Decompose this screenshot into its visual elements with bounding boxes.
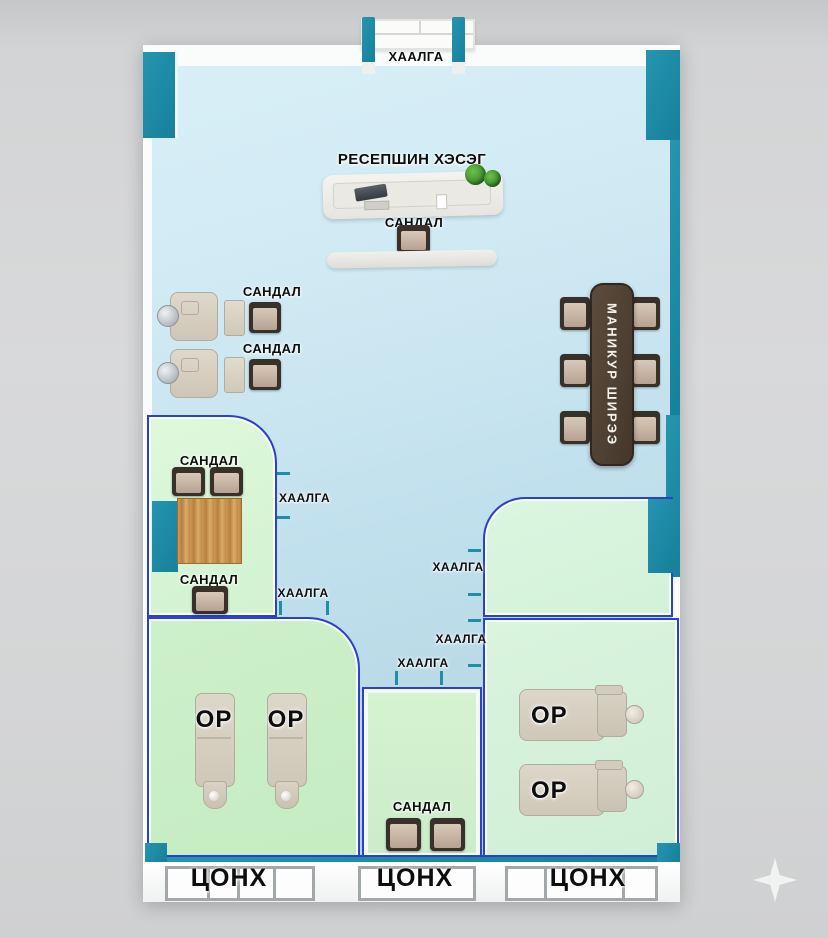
bed-label: ОР bbox=[268, 708, 305, 732]
waiting-bench bbox=[327, 250, 497, 269]
window-middle-label: ЦОНХ bbox=[377, 866, 453, 891]
manicure-chair bbox=[630, 297, 660, 330]
door-swing-mark bbox=[468, 593, 481, 596]
pedicure-chairs-label: САНДАЛ bbox=[393, 800, 451, 813]
massage-left-door-label: ХААЛГА bbox=[277, 587, 328, 599]
door-swing-mark bbox=[440, 671, 443, 685]
reception-area-label: РЕСЕПШИН ХЭСЭГ bbox=[338, 152, 486, 167]
manicure-table-label: МАНИКУР ШИРЭЭ bbox=[605, 303, 620, 446]
window-left-label: ЦОНХ bbox=[191, 866, 267, 891]
station-side-table bbox=[224, 357, 245, 393]
consult-chair bbox=[210, 467, 243, 496]
door-swing-mark bbox=[468, 664, 481, 667]
door-swing-mark bbox=[277, 516, 290, 519]
wall-bottom-right-corner bbox=[657, 843, 680, 862]
manicure-chair bbox=[560, 354, 590, 387]
recliner-pillow bbox=[181, 301, 199, 315]
floor-plan-canvas: ЦОНХ ЦОНХ ЦОНХ ХААЛГА РЕСЕПШИН ХЭСЭГ САН… bbox=[0, 0, 828, 938]
wall-right-upper bbox=[670, 140, 680, 420]
manicure-chair bbox=[630, 354, 660, 387]
station-chair bbox=[249, 359, 281, 390]
card-reader-icon bbox=[436, 194, 447, 209]
door-swing-mark bbox=[468, 619, 481, 622]
door-swing-mark bbox=[395, 671, 398, 685]
consult-chairs-top-label: САНДАЛ bbox=[180, 454, 238, 467]
manicure-table: МАНИКУР ШИРЭЭ bbox=[590, 283, 634, 466]
window-right-label: ЦОНХ bbox=[550, 866, 626, 891]
door-swing-mark bbox=[326, 601, 329, 615]
entrance-door-post-base bbox=[362, 62, 375, 74]
pedicure-door-label: ХААЛГА bbox=[397, 657, 448, 669]
recliner-pillow bbox=[181, 358, 199, 372]
lounge-room-closet-wall bbox=[648, 499, 673, 573]
entrance-door-post bbox=[362, 17, 375, 63]
entrance-door-label: ХААЛГА bbox=[388, 50, 443, 63]
bed-label: ОР bbox=[531, 779, 568, 803]
station-chair-label-1: САНДАЛ bbox=[243, 285, 301, 298]
wash-basin-icon bbox=[157, 305, 179, 327]
pedicure-chair bbox=[386, 818, 421, 851]
lounge-lower-door-label: ХААЛГА bbox=[435, 633, 486, 645]
station-chair bbox=[249, 302, 281, 333]
consult-door-label: ХААЛГА bbox=[279, 492, 330, 504]
station-side-table bbox=[224, 300, 245, 336]
plant-icon bbox=[484, 170, 501, 187]
consult-room-closet-wall bbox=[152, 501, 178, 572]
entrance-door-post bbox=[452, 17, 465, 63]
consult-wood-table bbox=[177, 498, 242, 564]
entrance-door-rail bbox=[419, 21, 421, 33]
wall-bottom-left-corner bbox=[145, 843, 167, 862]
consult-chair-bottom-label: САНДАЛ bbox=[180, 573, 238, 586]
entrance-door-post-base bbox=[452, 62, 465, 74]
wash-basin-icon bbox=[157, 362, 179, 384]
door-swing-mark bbox=[277, 472, 290, 475]
window-pane-divider bbox=[273, 869, 276, 898]
plant-icon bbox=[465, 164, 486, 185]
window-pane-divider bbox=[544, 869, 547, 898]
lounge-upper-door-label: ХААЛГА bbox=[432, 561, 483, 573]
station-chair-label-2: САНДАЛ bbox=[243, 342, 301, 355]
door-swing-mark bbox=[468, 549, 481, 552]
massage-room-left bbox=[147, 617, 360, 859]
consult-chair bbox=[172, 467, 205, 496]
manicure-chair bbox=[560, 411, 590, 444]
pedicure-chair bbox=[430, 818, 465, 851]
wall-top-right bbox=[646, 50, 680, 140]
door-swing-mark bbox=[279, 601, 282, 615]
consult-chair bbox=[192, 586, 228, 614]
lounge-room bbox=[483, 497, 673, 617]
reception-chair bbox=[397, 225, 430, 253]
sparkle-icon bbox=[753, 858, 797, 902]
bed-label: ОР bbox=[531, 704, 568, 728]
bed-label: ОР bbox=[196, 708, 233, 732]
manicure-chair bbox=[630, 411, 660, 444]
wall-top-left bbox=[143, 52, 178, 138]
keyboard-icon bbox=[364, 201, 389, 211]
manicure-chair bbox=[560, 297, 590, 330]
